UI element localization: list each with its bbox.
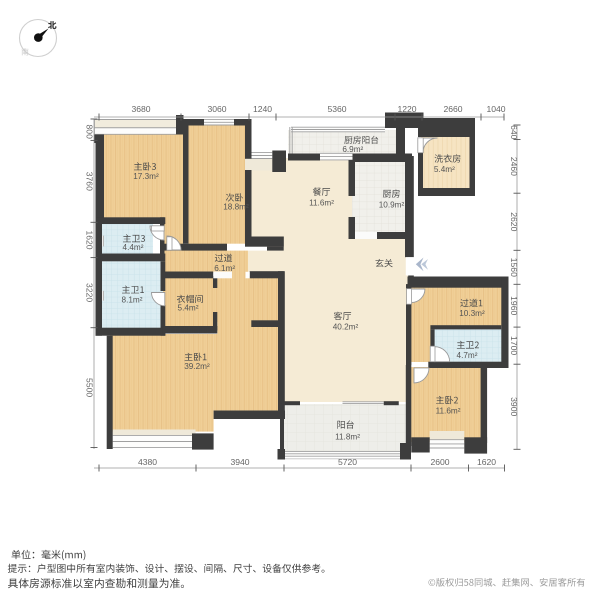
svg-text:10.3m²: 10.3m²	[459, 309, 485, 318]
svg-text:2620: 2620	[509, 212, 519, 231]
svg-text:11.6m²: 11.6m²	[436, 407, 461, 416]
svg-text:5720: 5720	[338, 457, 357, 467]
svg-text:5.4m²: 5.4m²	[434, 165, 455, 174]
svg-text:4.4m²: 4.4m²	[123, 243, 144, 252]
svg-text:5500: 5500	[85, 378, 95, 397]
svg-text:11.6m²: 11.6m²	[309, 198, 334, 207]
svg-text:3900: 3900	[509, 397, 519, 416]
svg-text:1700: 1700	[509, 336, 519, 355]
svg-text:11.8m²: 11.8m²	[335, 433, 360, 442]
svg-text:6.9m²: 6.9m²	[342, 145, 363, 154]
svg-text:3760: 3760	[85, 172, 95, 191]
svg-text:18.8m²: 18.8m²	[223, 203, 249, 212]
svg-text:6.1m²: 6.1m²	[214, 264, 235, 273]
svg-text:3220: 3220	[85, 283, 95, 302]
svg-text:1040: 1040	[486, 104, 505, 114]
svg-text:800: 800	[85, 125, 95, 140]
svg-text:4380: 4380	[138, 457, 157, 467]
svg-text:39.2m²: 39.2m²	[184, 362, 210, 371]
svg-text:1240: 1240	[253, 104, 272, 114]
svg-text:3060: 3060	[207, 104, 226, 114]
svg-text:10.9m²: 10.9m²	[379, 200, 405, 209]
svg-text:1560: 1560	[509, 258, 519, 277]
svg-text:4.7m²: 4.7m²	[457, 351, 478, 360]
svg-text:1960: 1960	[509, 296, 519, 315]
svg-text:17.3m²: 17.3m²	[133, 172, 159, 181]
svg-text:640: 640	[509, 125, 519, 140]
svg-text:40.2m²: 40.2m²	[333, 322, 359, 331]
svg-text:2660: 2660	[443, 104, 462, 114]
svg-text:3680: 3680	[131, 104, 150, 114]
svg-text:1220: 1220	[397, 104, 416, 114]
svg-text:5.4m²: 5.4m²	[178, 304, 199, 313]
svg-text:1620: 1620	[477, 457, 496, 467]
svg-text:1620: 1620	[85, 230, 95, 249]
svg-text:5360: 5360	[327, 104, 346, 114]
svg-text:3940: 3940	[230, 457, 249, 467]
svg-text:2460: 2460	[509, 157, 519, 176]
svg-text:8.1m²: 8.1m²	[122, 296, 143, 305]
svg-text:2600: 2600	[430, 457, 449, 467]
